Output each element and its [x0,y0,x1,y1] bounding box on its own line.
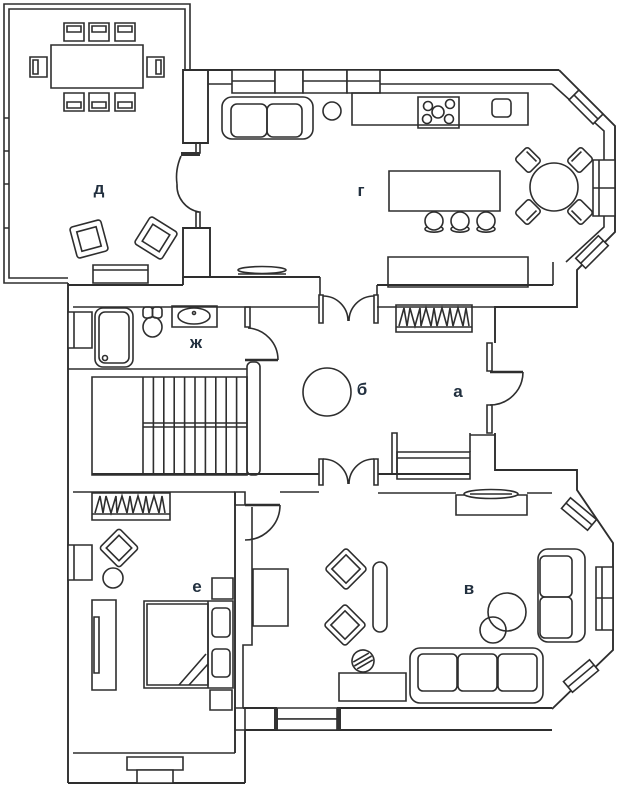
room-label-v: в [464,579,474,599]
nightstand [210,690,232,710]
fireplace [93,265,148,283]
console [373,562,387,632]
armchair [99,528,139,568]
wardrobe-entry [396,305,472,332]
terrace-furniture [30,23,178,283]
coffee-table [488,593,526,631]
kitchen-furniture [222,93,593,287]
round-table-chairs [515,147,594,226]
hall-furniture [303,368,351,416]
window-west-bath [68,312,92,348]
living-furniture [253,490,585,704]
window-north [232,70,380,93]
door-entrance [487,343,523,433]
doors [177,143,524,540]
door-bedroom [245,505,280,540]
stairs [92,377,247,475]
side-table [103,568,123,588]
bed [144,601,233,688]
tv-stand [456,490,527,516]
room-label-g: г [357,181,364,201]
bathtub [95,308,133,367]
walls [4,4,615,783]
pouf [348,646,378,676]
floor-plan-drawing [0,0,622,785]
side-table [323,102,341,120]
room-label-d: д [94,179,105,199]
nightstand [212,578,233,599]
door-double-hall-living [319,459,378,485]
pillow [212,649,230,677]
kitchen-island [389,171,500,211]
armchair [325,548,367,590]
fireplace-living [253,569,288,626]
room-label-e: е [192,577,201,597]
radiator [238,267,286,275]
sideboard [388,257,528,287]
stove [418,97,459,128]
room-label-zh: ж [190,333,202,353]
wardrobe-bedroom [92,493,170,520]
toilet [143,307,162,337]
armchair [69,219,108,258]
door-double-hall-kitchen [319,295,378,323]
floor-plan: д г ж б а е в [0,0,622,785]
porch-steps [127,757,183,783]
room-label-b: б [357,380,368,400]
door-bathroom [245,328,278,360]
sofa-two-seat [538,549,585,642]
bar-stools [425,212,495,232]
dining-chairs [30,23,164,111]
kitchen-sink [492,99,511,117]
hall-round-table [303,368,351,416]
dresser-mirror [92,600,116,690]
bedroom-furniture [92,493,233,710]
round-table [530,163,578,211]
room-label-a: а [453,382,462,402]
washbasin [172,306,217,327]
armchair [324,604,366,646]
sofa-three-seat [410,648,543,703]
window-south-living [274,708,341,730]
dining-table [51,45,143,88]
door-terrace-kitchen [177,143,201,228]
pillow [212,608,230,637]
window-bay-living [561,498,613,693]
sofa-kitchen [222,97,313,139]
armchair [134,216,178,260]
media-table [339,673,406,701]
window-west-bedroom [68,545,92,580]
